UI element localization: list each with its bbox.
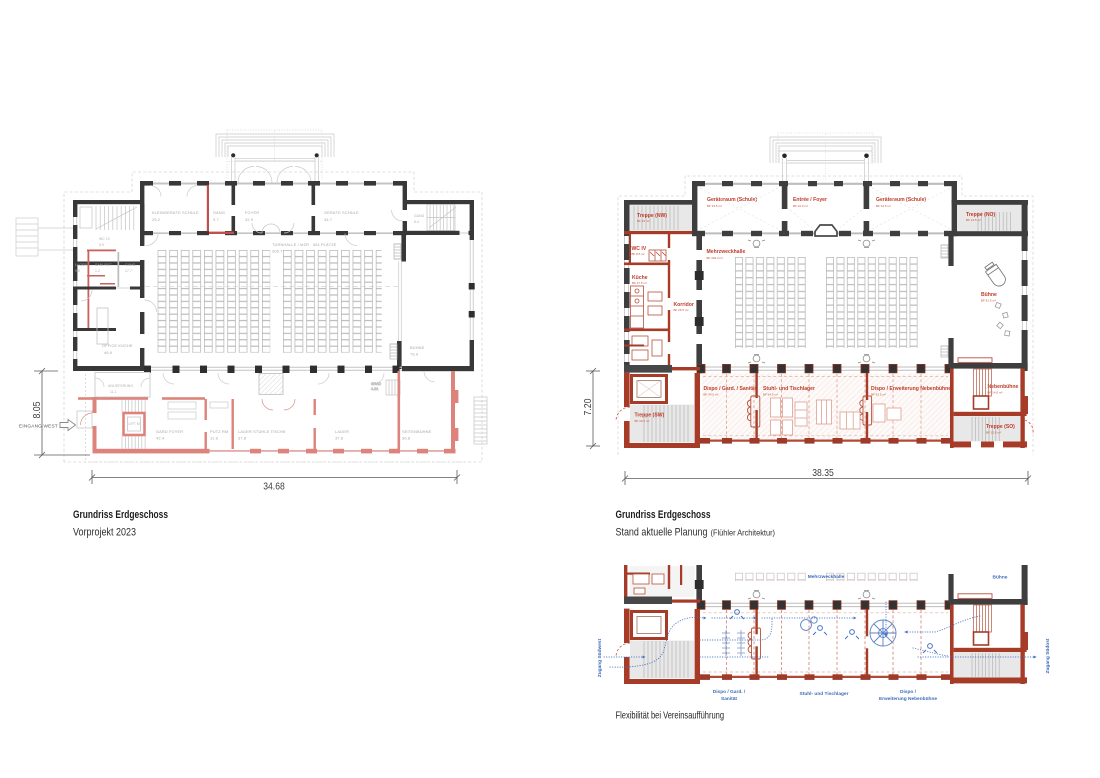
svg-text:Nebenbühne: Nebenbühne (988, 384, 1019, 390)
svg-text:BF 33.5 m²: BF 33.5 m² (707, 204, 722, 208)
svg-text:17.7: 17.7 (125, 269, 132, 273)
svg-text:37.8: 37.8 (335, 436, 343, 441)
svg-text:BF 13.5 m²: BF 13.5 m² (986, 431, 1001, 435)
svg-text:PUTZ RM: PUTZ RM (210, 429, 228, 434)
svg-text:Grundriss Erdgeschoss: Grundriss Erdgeschoss (616, 509, 711, 521)
svg-text:BF 19 m²: BF 19 m² (637, 219, 649, 223)
svg-text:BF 27.5 m²: BF 27.5 m² (632, 281, 647, 285)
svg-text:25.2: 25.2 (152, 217, 160, 222)
svg-text:FOYER: FOYER (245, 210, 259, 215)
svg-text:GANG: GANG (213, 210, 225, 215)
svg-text:1.2: 1.2 (95, 269, 100, 273)
svg-text:32.9: 32.9 (245, 217, 253, 222)
svg-text:Stuhl- und Tischlager: Stuhl- und Tischlager (800, 691, 849, 697)
svg-text:BÜHNE: BÜHNE (410, 345, 425, 350)
svg-text:36.8: 36.8 (402, 436, 410, 441)
svg-text:BF 34.5 m²: BF 34.5 m² (704, 393, 719, 397)
svg-text:Dispo /: Dispo / (900, 689, 917, 695)
svg-text:OFFICE KÜCHE: OFFICE KÜCHE (102, 343, 133, 348)
svg-text:BF 33.5 m²: BF 33.5 m² (635, 419, 650, 423)
svg-text:GERÄTE SCHULE: GERÄTE SCHULE (324, 210, 359, 215)
svg-text:Erweiterung Nebenbühne: Erweiterung Nebenbühne (879, 696, 937, 702)
svg-text:Bühne: Bühne (993, 575, 1008, 581)
svg-text:34.7: 34.7 (324, 217, 332, 222)
svg-text:7.20: 7.20 (582, 398, 594, 415)
svg-text:38.35: 38.35 (812, 467, 834, 479)
svg-text:Dispo / Gard. /: Dispo / Gard. / (713, 689, 746, 695)
svg-text:SEITENBÜHNE: SEITENBÜHNE (402, 429, 432, 434)
svg-text:42.4: 42.4 (156, 436, 165, 441)
svg-text:Flexibilität bei Vereinsauffüh: Flexibilität bei Vereinsaufführung (616, 711, 725, 722)
svg-text:3.9: 3.9 (99, 243, 104, 247)
svg-text:LAGER: LAGER (335, 429, 349, 434)
svg-text:Geräteraum (Schule): Geräteraum (Schule) (707, 197, 757, 203)
svg-text:Zugang Südost: Zugang Südost (1045, 638, 1051, 673)
svg-text:9.6: 9.6 (75, 269, 80, 273)
svg-text:BF 81.5 m²: BF 81.5 m² (981, 299, 996, 303)
svg-text:Dispo / Erweiterung Nebenbühne: Dispo / Erweiterung Nebenbühne (871, 386, 951, 392)
svg-text:Dispo / Gard. / Sanität: Dispo / Gard. / Sanität (704, 386, 757, 392)
svg-text:LIFT M: LIFT M (129, 422, 140, 426)
svg-text:LAGER: LAGER (75, 263, 87, 267)
svg-text:4.2A: 4.2A (371, 387, 379, 391)
svg-text:78.9: 78.9 (410, 352, 418, 357)
svg-text:BF 8.5 m²: BF 8.5 m² (632, 252, 645, 256)
svg-text:Stuhl- und Tischlager: Stuhl- und Tischlager (763, 386, 815, 392)
svg-text:Bühne: Bühne (981, 292, 997, 298)
svg-text:11.8: 11.8 (210, 436, 218, 441)
svg-text:BF 26.5 m²: BF 26.5 m² (674, 308, 689, 312)
svg-text:EINGANG WEST: EINGANG WEST (19, 424, 58, 429)
svg-text:Treppe (SW): Treppe (SW) (635, 413, 665, 419)
svg-text:GRAD: GRAD (371, 382, 382, 386)
svg-text:BF 14.0 m²: BF 14.0 m² (988, 391, 1003, 395)
svg-text:GARD FOYER: GARD FOYER (156, 429, 183, 434)
svg-text:Sanität: Sanität (721, 696, 737, 702)
svg-text:KLEINGERÄTE SCHULE: KLEINGERÄTE SCHULE (152, 210, 199, 215)
svg-text:Stand aktuelle Planung: Stand aktuelle Planung (616, 527, 708, 539)
svg-text:34.68: 34.68 (263, 481, 285, 493)
svg-text:GANG: GANG (125, 263, 136, 267)
svg-text:8.05: 8.05 (31, 401, 43, 418)
svg-text:Geräteraum (Schule): Geräteraum (Schule) (876, 197, 926, 203)
svg-text:GANG: GANG (414, 214, 425, 218)
svg-text:Vorprojekt 2023: Vorprojekt 2023 (73, 527, 136, 539)
svg-text:Mehrzweckhalle: Mehrzweckhalle (808, 574, 845, 580)
svg-text:TURNHALLE / MZR 304 PLÄTZE: TURNHALLE / MZR 304 PLÄTZE (272, 242, 337, 247)
svg-text:SANI RÄT: SANI RÄT (95, 263, 111, 267)
svg-text:BF 62.5 m²: BF 62.5 m² (871, 393, 886, 397)
svg-text:Zugang Südwest: Zugang Südwest (597, 638, 603, 677)
svg-text:LAGER STÜHLE TISCHE: LAGER STÜHLE TISCHE (238, 429, 286, 434)
svg-text:46.9: 46.9 (104, 350, 112, 355)
svg-text:BF 302.3 m²: BF 302.3 m² (707, 256, 724, 260)
svg-text:(Flühler Architektur): (Flühler Architektur) (711, 529, 776, 538)
svg-text:WC 10: WC 10 (99, 237, 110, 241)
svg-text:Mehrzweckhalle: Mehrzweckhalle (707, 249, 746, 255)
svg-text:11.1: 11.1 (110, 390, 117, 394)
svg-text:ANLIEFERUNG: ANLIEFERUNG (108, 384, 133, 388)
svg-text:Grundriss Erdgeschoss: Grundriss Erdgeschoss (73, 509, 168, 521)
svg-text:5.4: 5.4 (414, 220, 419, 224)
svg-text:Treppe (SO): Treppe (SO) (986, 424, 1015, 430)
svg-text:BF 64.5 m²: BF 64.5 m² (763, 393, 778, 397)
svg-text:9.7: 9.7 (213, 217, 219, 222)
svg-text:BF 34.5 m²: BF 34.5 m² (876, 204, 891, 208)
svg-text:Entrée / Foyer: Entrée / Foyer (793, 197, 827, 203)
svg-text:BF 13.5 m²: BF 13.5 m² (966, 218, 981, 222)
svg-text:37.8: 37.8 (238, 436, 246, 441)
svg-text:306.7: 306.7 (272, 249, 283, 254)
svg-text:BF 22.3 m²: BF 22.3 m² (793, 204, 808, 208)
